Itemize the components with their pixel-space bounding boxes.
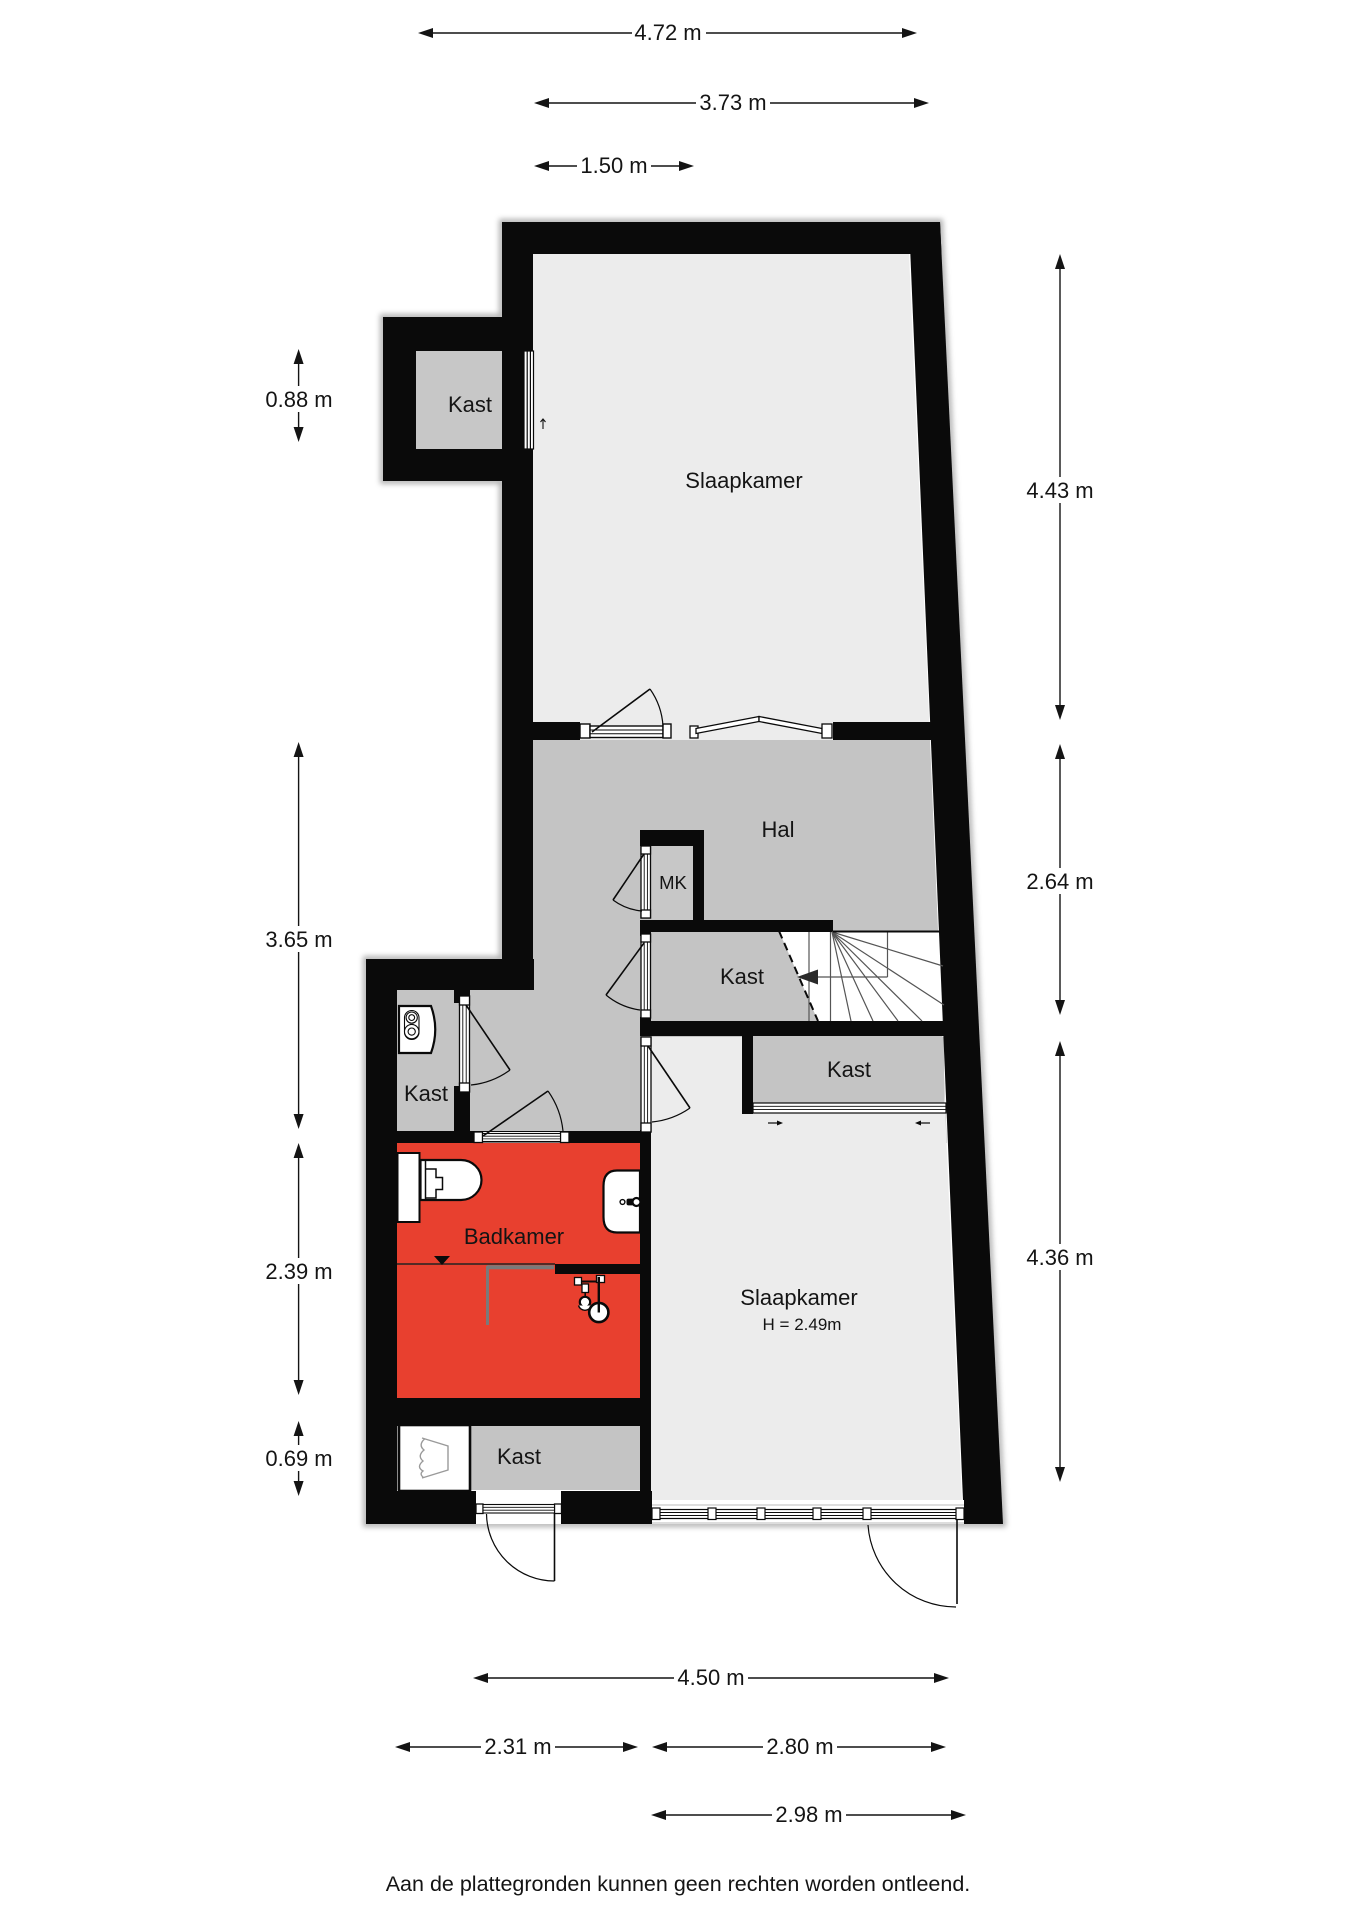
svg-text:Aan de plattegronden kunnen ge: Aan de plattegronden kunnen geen rechten… <box>386 1872 971 1896</box>
svg-text:1.50 m: 1.50 m <box>580 153 647 178</box>
svg-text:H = 2.49m: H = 2.49m <box>763 1315 842 1334</box>
svg-text:Kast: Kast <box>497 1444 541 1469</box>
svg-text:4.72 m: 4.72 m <box>634 20 701 45</box>
svg-text:4.43 m: 4.43 m <box>1026 478 1093 503</box>
svg-text:3.73 m: 3.73 m <box>699 90 766 115</box>
svg-text:2.31 m: 2.31 m <box>484 1734 551 1759</box>
svg-text:Kast: Kast <box>720 964 764 989</box>
svg-text:0.69 m: 0.69 m <box>265 1446 332 1471</box>
svg-text:Kast: Kast <box>448 392 492 417</box>
svg-text:0.88 m: 0.88 m <box>265 387 332 412</box>
svg-text:2.80 m: 2.80 m <box>766 1734 833 1759</box>
svg-text:4.36 m: 4.36 m <box>1026 1245 1093 1270</box>
svg-text:2.98 m: 2.98 m <box>775 1802 842 1827</box>
svg-text:Slaapkamer: Slaapkamer <box>685 468 802 493</box>
svg-text:Badkamer: Badkamer <box>464 1224 564 1249</box>
svg-text:3.65 m: 3.65 m <box>265 927 332 952</box>
svg-text:4.50 m: 4.50 m <box>677 1665 744 1690</box>
svg-text:2.64 m: 2.64 m <box>1026 869 1093 894</box>
svg-text:Kast: Kast <box>404 1081 448 1106</box>
svg-text:Kast: Kast <box>827 1057 871 1082</box>
svg-text:2.39 m: 2.39 m <box>265 1259 332 1284</box>
svg-text:MK: MK <box>659 872 687 893</box>
svg-text:Slaapkamer: Slaapkamer <box>740 1285 857 1310</box>
svg-text:Hal: Hal <box>761 817 794 842</box>
